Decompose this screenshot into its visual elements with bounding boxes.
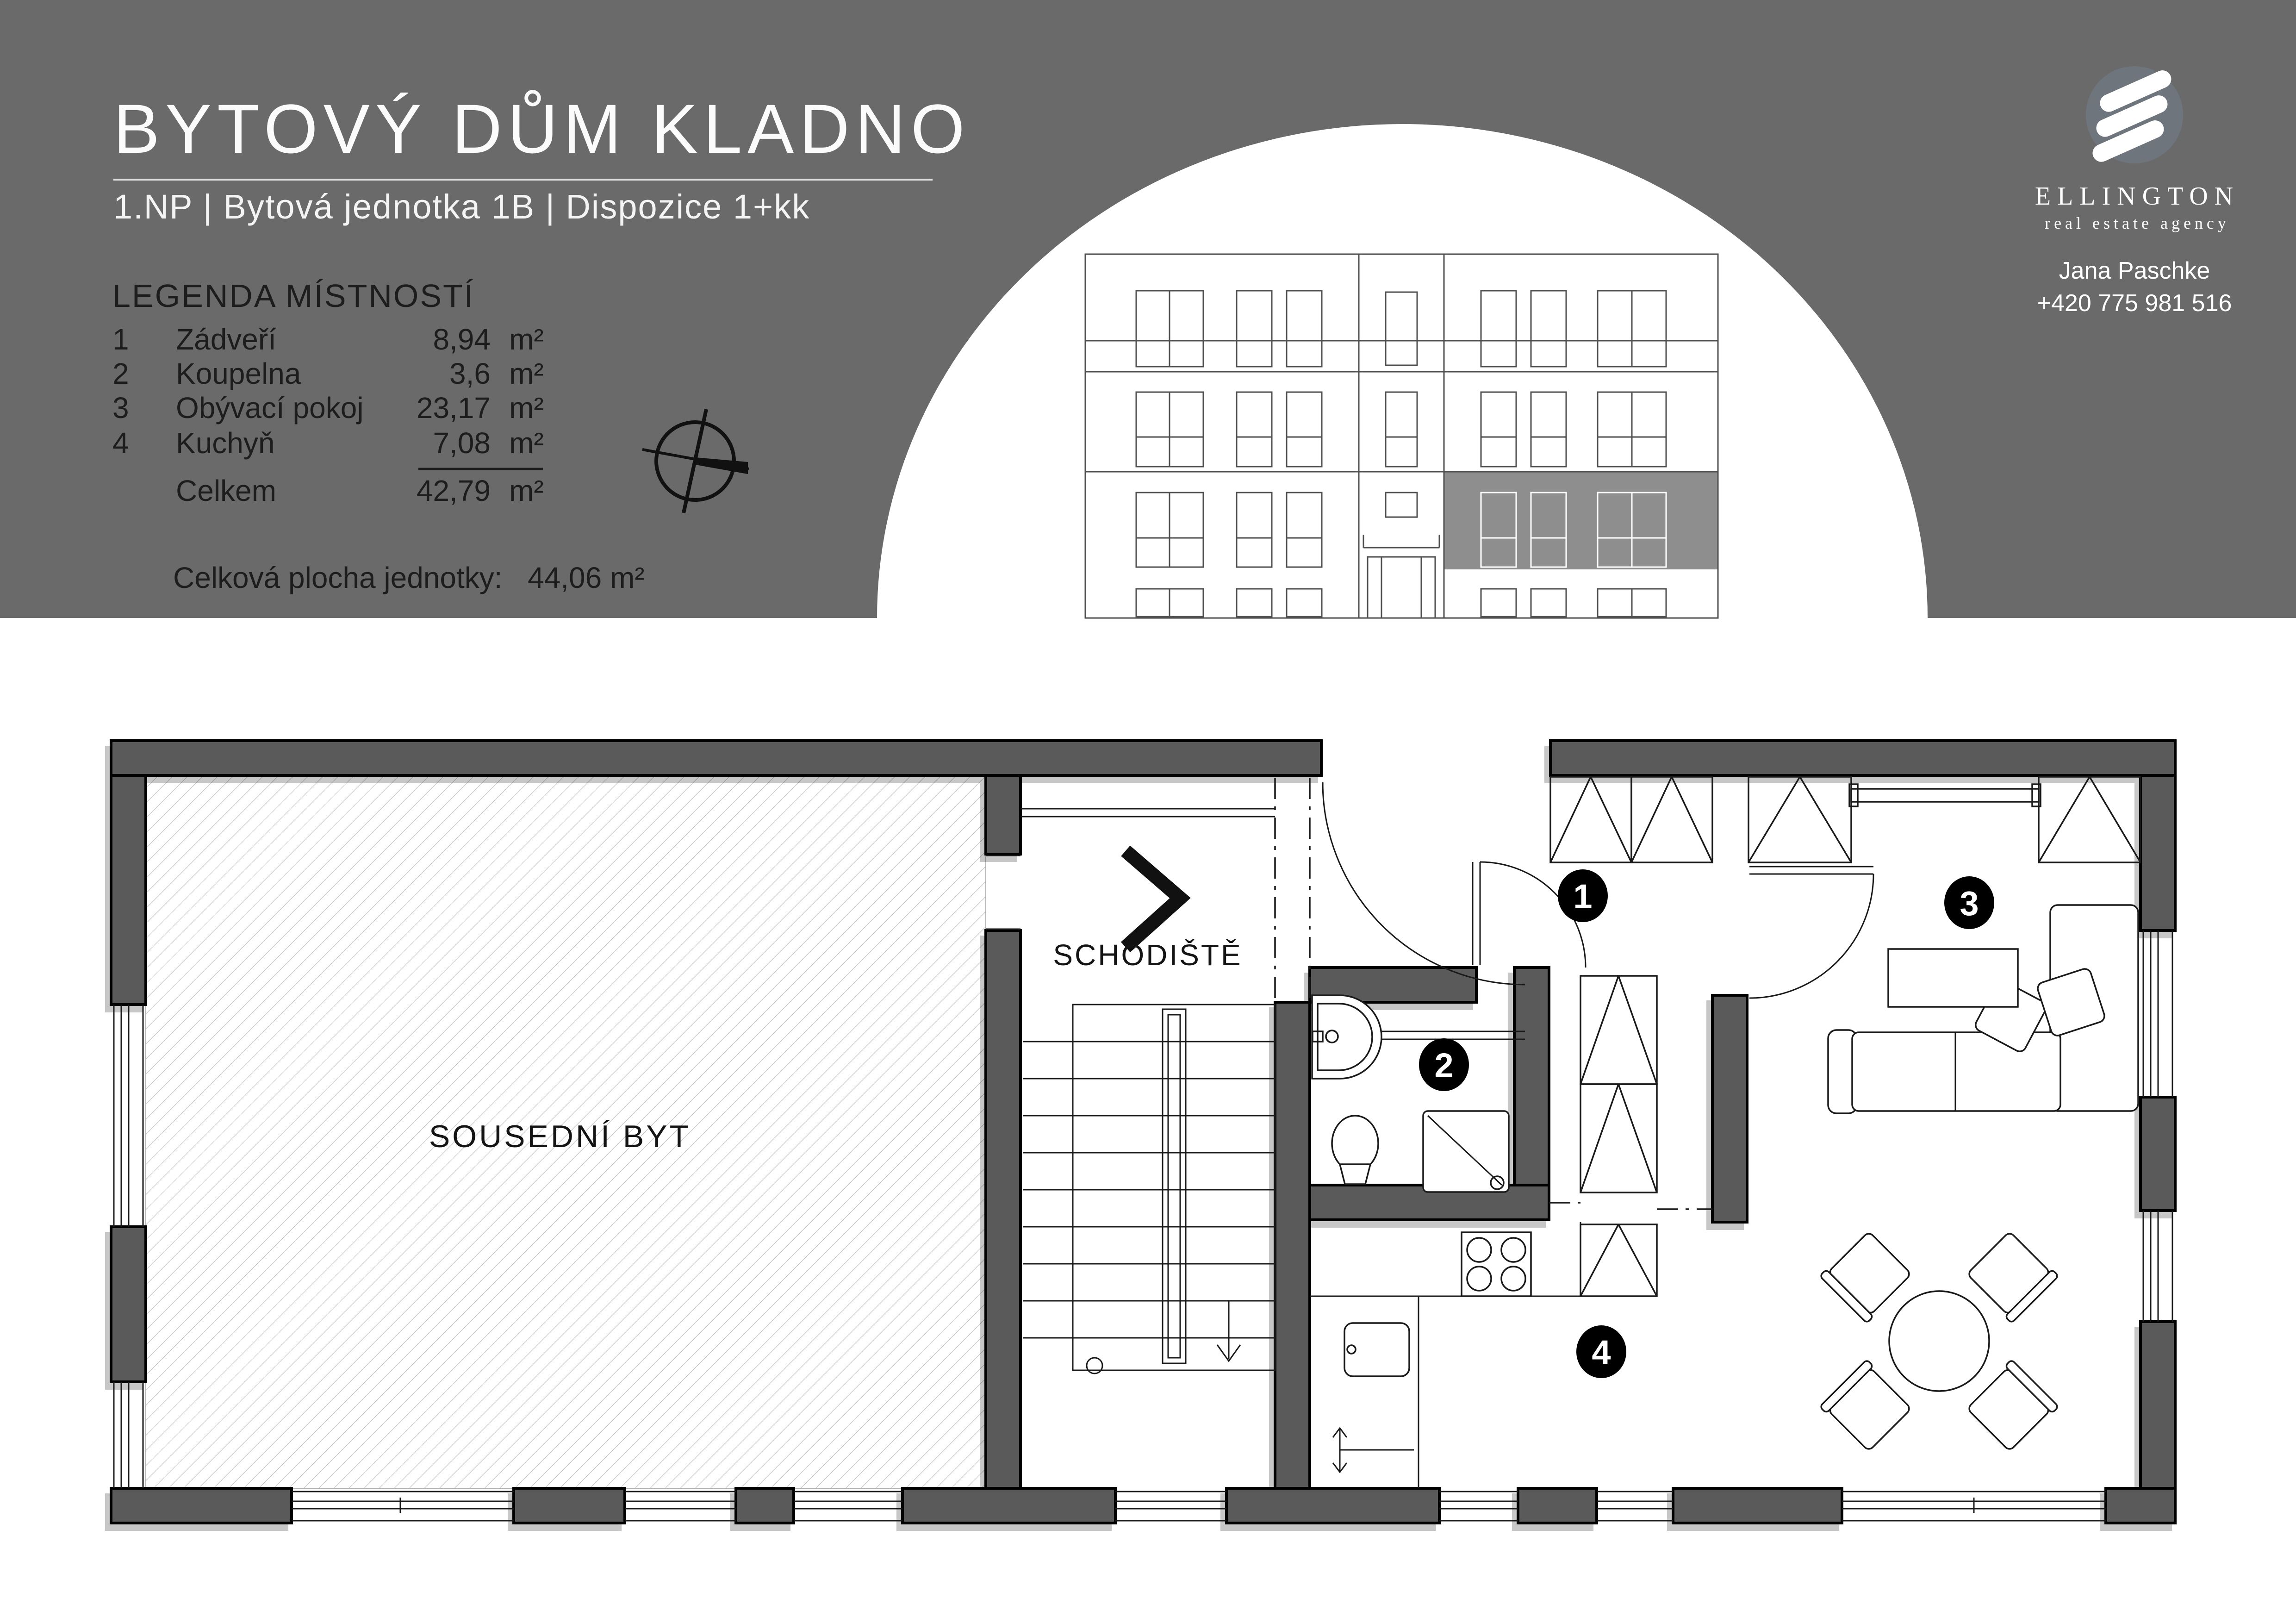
living-room-door — [1749, 867, 1873, 998]
brochure-canvas: BYTOVÝ DŮM KLADNO 1.NP | Bytová jednotka… — [0, 0, 2296, 1617]
kitchen-sink — [1344, 1323, 1409, 1376]
bathroom-sink — [1312, 995, 1381, 1079]
legend-row-name: Zádveří — [176, 323, 276, 356]
agency-tagline: real estate agency — [2045, 214, 2230, 232]
room-boundary-markers — [1549, 1203, 1712, 1209]
kitchen-appliance-symbol — [1333, 1428, 1414, 1472]
floor-plan: SOUSEDNÍ BYT SCHODIŠTĚ 1 2 3 4 — [111, 741, 2175, 1523]
neighbor-door-opening — [986, 855, 1020, 929]
sofa — [1828, 905, 2138, 1113]
legend-row-unit: m² — [509, 323, 544, 356]
legend-row-number: 3 — [112, 391, 129, 425]
entrance-arrow-icon — [1126, 851, 1180, 947]
legend-row-number: 2 — [112, 357, 129, 390]
legend-row-name: Kuchyň — [176, 426, 274, 460]
agency-name: ELLINGTON — [2035, 182, 2240, 211]
legend-total-unit: m² — [509, 474, 544, 507]
legend-row-area: 3,6 — [449, 357, 491, 390]
shower — [1423, 1111, 1509, 1192]
legend-row-unit: m² — [509, 391, 544, 425]
stove — [1462, 1232, 1531, 1296]
dining-chair — [1820, 1360, 1914, 1454]
staircase — [1020, 809, 1275, 1374]
room-badge-2: 2 — [1419, 1038, 1469, 1091]
cabinet-column — [1580, 976, 1657, 1296]
dining-chair — [1820, 1229, 1914, 1323]
page-title: BYTOVÝ DŮM KLADNO — [113, 89, 971, 168]
room-badge-label: 4 — [1592, 1333, 1611, 1372]
room-badge-label: 3 — [1960, 884, 1979, 923]
legend-row-name: Koupelna — [176, 357, 301, 390]
dining-table — [1889, 1291, 1989, 1391]
agent-phone: +420 775 981 516 — [2037, 290, 2232, 317]
page-subtitle: 1.NP | Bytová jednotka 1B | Dispozice 1+… — [113, 187, 810, 226]
dining-set — [1820, 1229, 2059, 1454]
stairs-label: SCHODIŠTĚ — [1053, 938, 1242, 972]
room-badge-label: 2 — [1434, 1046, 1453, 1085]
unit-total-value: 44,06 m² — [528, 561, 645, 594]
room-badge-3: 3 — [1944, 876, 1994, 929]
legend-row-unit: m² — [509, 426, 544, 460]
legend-row: 3 Obývací pokoj 23,17 m² — [112, 391, 544, 425]
legend-row-number: 4 — [112, 426, 129, 460]
legend-row-area: 23,17 — [417, 391, 491, 425]
legend-row-unit: m² — [509, 357, 544, 390]
legend-row-area: 8,94 — [433, 323, 491, 356]
legend-row-number: 1 — [112, 323, 129, 356]
unit-highlight — [1444, 472, 1718, 569]
unit-total-label: Celková plocha jednotky: — [173, 561, 503, 594]
room-badge-1: 1 — [1558, 869, 1608, 922]
room-badge-4: 4 — [1576, 1325, 1626, 1378]
neighbor-flat-label: SOUSEDNÍ BYT — [429, 1119, 691, 1154]
legend-total-area: 42,79 — [417, 474, 491, 507]
toilet — [1332, 1116, 1378, 1184]
legend-row-name: Obývací pokoj — [176, 391, 364, 425]
room-badge-label: 1 — [1573, 877, 1592, 916]
dining-chair — [1965, 1229, 2059, 1323]
legend-row-area: 7,08 — [433, 426, 491, 460]
coffee-table — [1888, 949, 2018, 1007]
unit-total-line: Celková plocha jednotky: 44,06 m² — [173, 561, 645, 594]
brochure-page: BYTOVÝ DŮM KLADNO 1.NP | Bytová jednotka… — [0, 0, 2296, 1617]
legend-heading: LEGENDA MÍSTNOSTÍ — [112, 278, 474, 314]
legend-total-label: Celkem — [176, 474, 276, 507]
sideboard — [1849, 784, 2041, 806]
dining-chair — [1965, 1360, 2059, 1454]
agent-name: Jana Paschke — [2059, 257, 2210, 284]
hall-wardrobes — [1550, 777, 1712, 862]
